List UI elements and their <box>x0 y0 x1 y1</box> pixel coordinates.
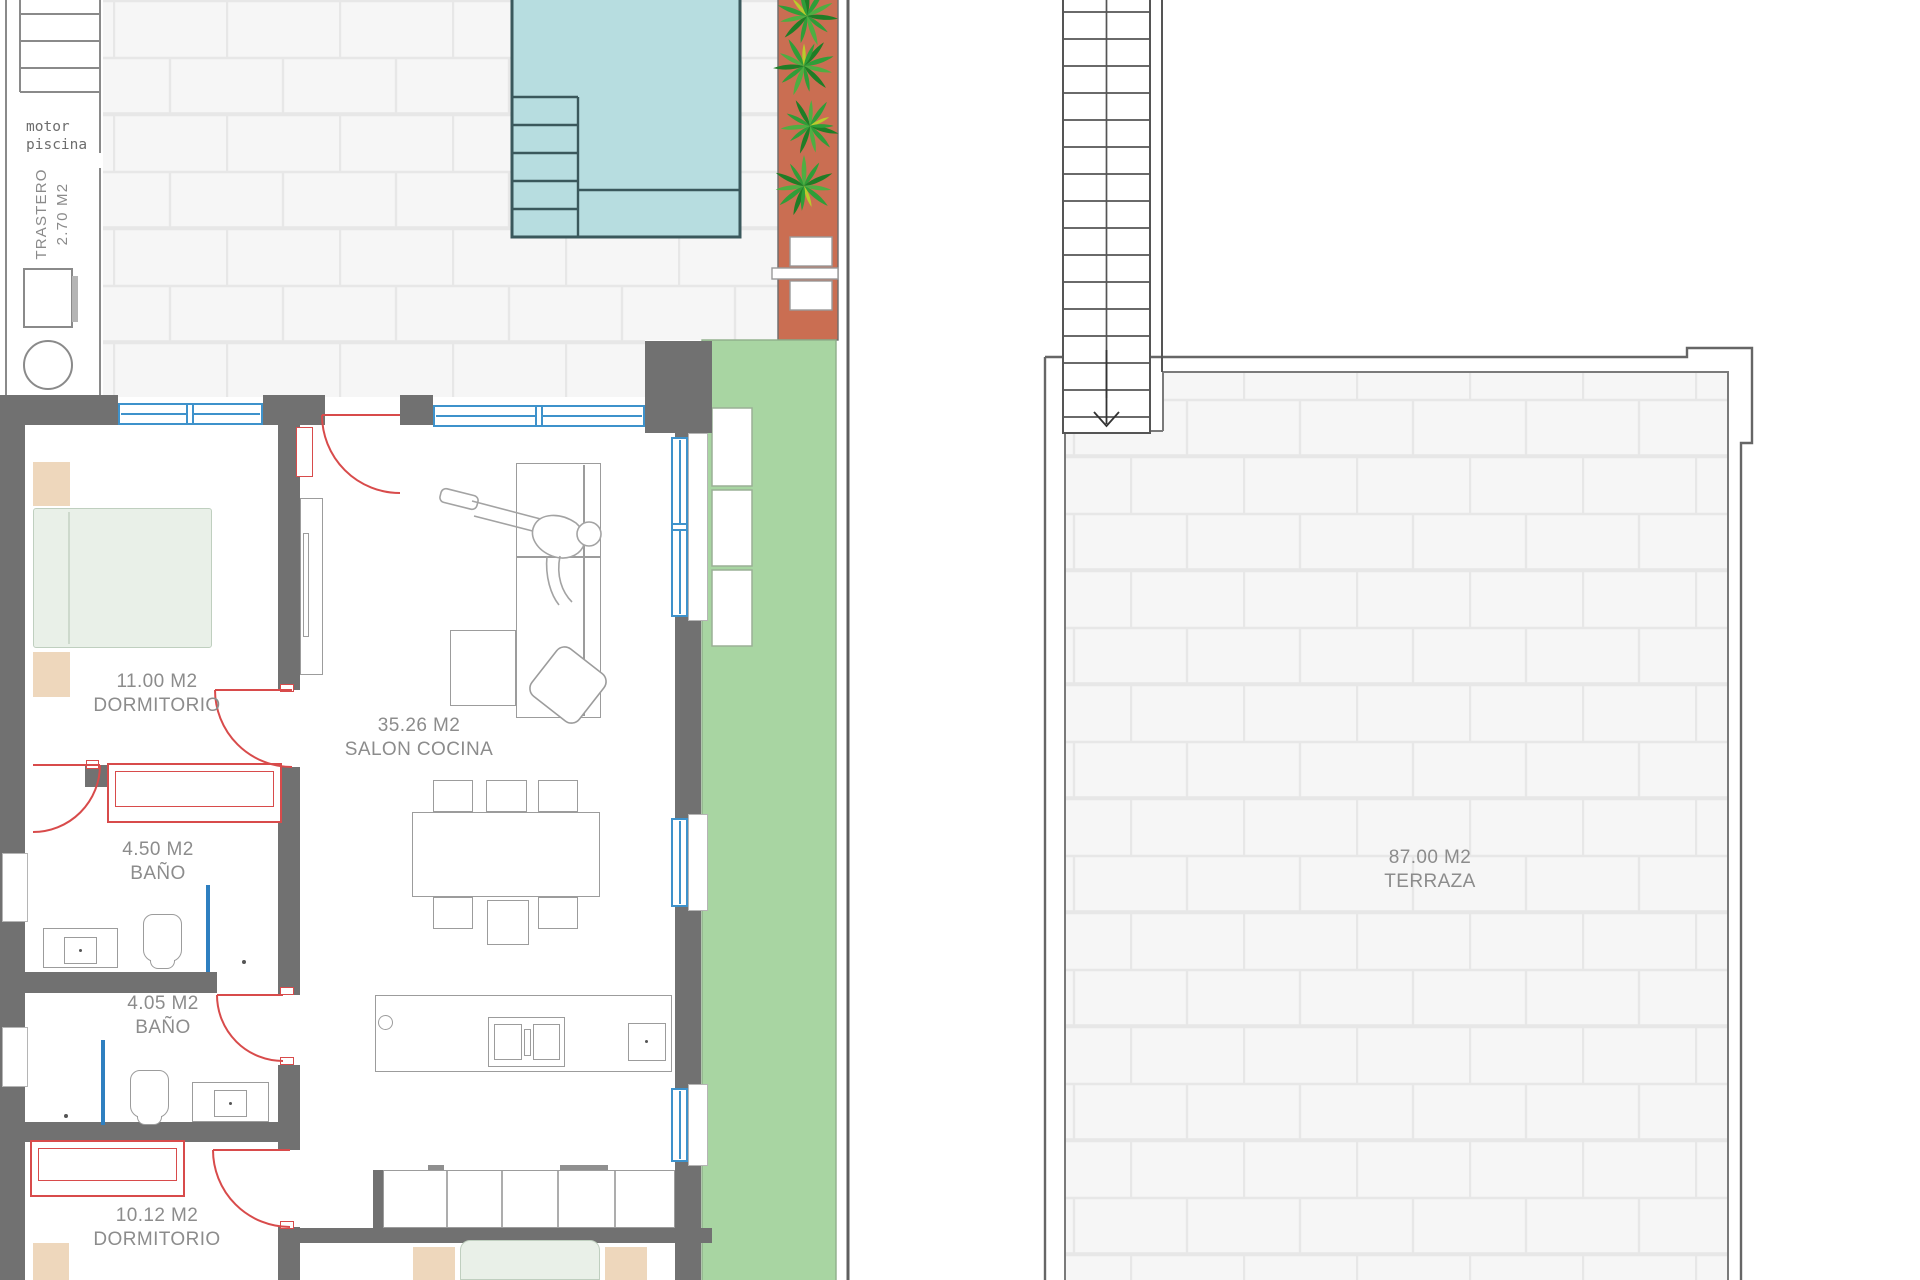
door-jamb <box>86 760 99 769</box>
door-jamb <box>280 1221 294 1229</box>
bed-double <box>33 508 212 648</box>
nightstand <box>33 652 70 697</box>
bath1-window-niche <box>2 853 28 922</box>
terrace-inner-border <box>1065 372 1728 1280</box>
plant-icon <box>777 0 838 46</box>
planter-strip <box>778 0 838 340</box>
wall-top-corner-column <box>645 341 712 433</box>
nightstand <box>605 1247 647 1280</box>
nightstand <box>413 1247 455 1280</box>
dining-chair <box>538 780 578 812</box>
dining-table <box>412 812 600 897</box>
terrace-outer-border <box>1045 348 1752 1280</box>
kitchen-window-side1 <box>671 818 688 907</box>
window-sill <box>688 433 708 621</box>
room-label-dormitorio2: 10.12 M2 DORMITORIO <box>82 1204 232 1252</box>
wall-right-4 <box>675 1162 701 1280</box>
bed-double <box>460 1240 600 1280</box>
bath1-shower-screen <box>206 885 210 972</box>
dining-chair <box>486 780 527 812</box>
sink <box>378 1015 393 1030</box>
stair-wall <box>1150 0 1162 372</box>
dining-chair <box>538 897 578 929</box>
room-label-terraza: 87.00 M2 TERRAZA <box>1355 846 1505 894</box>
door-jamb <box>280 684 294 692</box>
side-gate <box>772 237 838 310</box>
salon-window-top <box>433 405 645 427</box>
stair-treads <box>1063 12 1150 417</box>
plant-icon <box>764 147 842 225</box>
window-sill <box>688 814 708 911</box>
wall-left <box>0 395 25 1280</box>
door-bath2 <box>217 995 283 1061</box>
bedroom1-window <box>118 403 263 425</box>
plant-icon <box>775 91 846 162</box>
water-tank <box>24 341 72 389</box>
bath2-toilet <box>130 1070 169 1118</box>
motor-piscina-label: motor piscina <box>26 118 87 154</box>
room-label-dormitorio1: 11.00 M2 DORMITORIO <box>82 670 232 718</box>
window-sill <box>688 1084 708 1166</box>
pool-motor-unit <box>24 269 72 327</box>
counter-handle <box>560 1165 608 1170</box>
wall-right-3 <box>675 907 701 1088</box>
terrace-paving <box>1163 372 1728 432</box>
floor-plan-canvas: motor piscina TRASTERO 2.70 M2 11.00 M2 … <box>0 0 1920 1280</box>
pool-steps <box>512 97 740 237</box>
salon-window-side <box>671 437 688 617</box>
counter-handle <box>428 1165 444 1170</box>
grass-strip <box>702 340 836 1280</box>
stairs-direction-arrow-icon <box>1094 350 1119 426</box>
pool <box>512 0 740 237</box>
trastero-label: TRASTERO 2.70 M2 <box>31 154 75 274</box>
coffee-table <box>450 630 516 706</box>
bath2-shower-screen <box>101 1040 105 1125</box>
patio-paving <box>103 0 778 340</box>
staircase <box>1063 0 1162 433</box>
dining-chair <box>433 897 473 929</box>
entry-cabinet <box>296 427 313 477</box>
sofa <box>516 463 601 718</box>
dining-chair <box>433 780 473 812</box>
dining-chair <box>487 900 529 945</box>
entry-steps <box>20 0 100 92</box>
wall-bath2-bedroom2-divider <box>25 1122 300 1142</box>
kitchen-window-side2 <box>671 1088 688 1162</box>
plant-icon <box>762 23 848 109</box>
bed-pillow-line <box>68 512 70 644</box>
wall-bath-divider <box>25 972 217 993</box>
room-label-salon: 35.26 M2 SALON COCINA <box>329 714 509 762</box>
door-jamb <box>280 987 294 995</box>
room-label-bano1: 4.50 M2 BAÑO <box>95 838 221 886</box>
wall-top-b <box>263 395 325 425</box>
door-jamb <box>280 1057 294 1065</box>
door-salon-entry <box>322 415 400 493</box>
kitchen-counter <box>383 1170 675 1228</box>
nightstand <box>33 462 70 506</box>
wall-right-2 <box>675 617 701 818</box>
room-label-bano2: 4.05 M2 BAÑO <box>100 992 226 1040</box>
nightstand <box>33 1243 69 1280</box>
bath1-toilet <box>143 914 182 962</box>
wall-top-c <box>400 395 433 425</box>
garden-planters <box>712 408 752 646</box>
bath2-window-niche <box>2 1027 28 1087</box>
